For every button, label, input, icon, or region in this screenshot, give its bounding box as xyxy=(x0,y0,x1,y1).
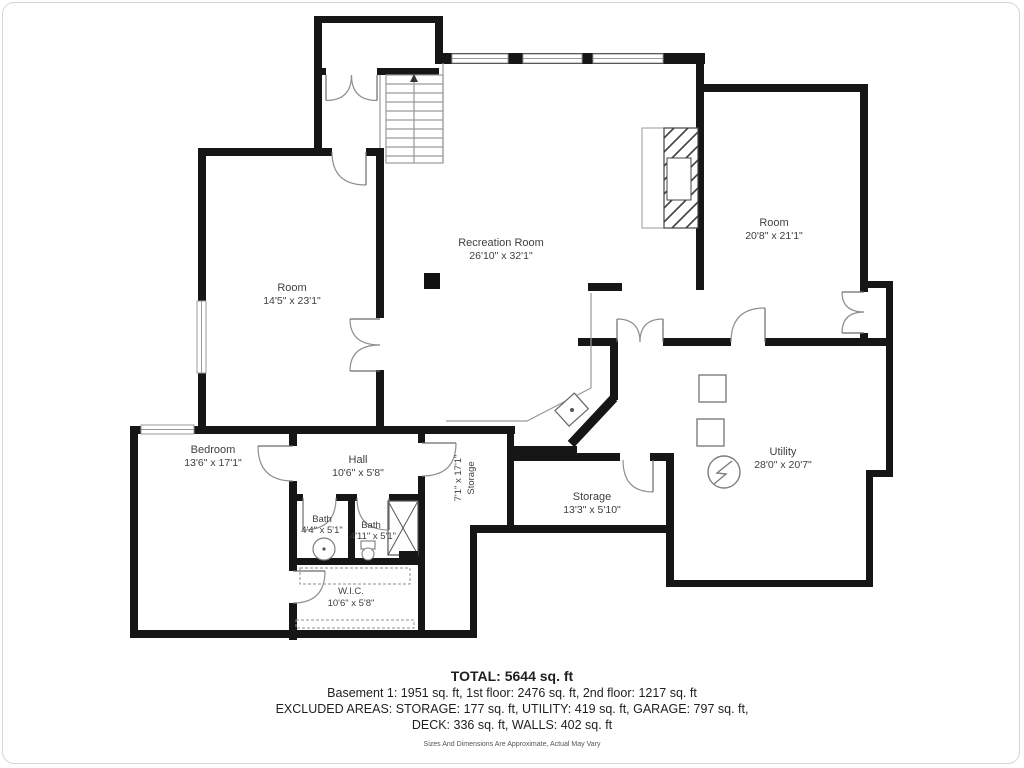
room-labels: Recreation Room 26'10" x 32'1" Room 20'8… xyxy=(184,217,812,609)
wic-dims: 10'6" x 5'8" xyxy=(328,598,375,609)
shower-icon xyxy=(388,501,418,559)
bath-1-name: Bath xyxy=(312,514,332,525)
bedroom-dims: 13'6" x 17'1" xyxy=(184,457,242,469)
storage-dims: 13'3" x 5'10" xyxy=(563,504,621,516)
room-label-bedroom: Bedroom 13'6" x 17'1" xyxy=(184,444,242,469)
storage-name: Storage xyxy=(573,491,612,503)
door-icon xyxy=(350,319,380,371)
disclaimer: Sizes And Dimensions Are Approximate, Ac… xyxy=(0,741,1024,748)
closet-rod-icon xyxy=(296,620,414,628)
door-icon xyxy=(731,308,765,342)
utility-name: Utility xyxy=(770,446,797,458)
door-icon xyxy=(332,152,366,185)
bath-2-name: Bath xyxy=(361,520,381,531)
upper-right-room-name: Room xyxy=(759,217,788,229)
utility-equipment-icon xyxy=(697,419,724,446)
upper-right-room-dims: 20'8" x 21'1" xyxy=(745,230,803,242)
floor-areas: Basement 1: 1951 sq. ft, 1st floor: 2476… xyxy=(0,686,1024,700)
door-icon xyxy=(623,460,653,492)
excluded-areas-line-1: EXCLUDED AREAS: STORAGE: 177 sq. ft, UTI… xyxy=(0,702,1024,716)
door-icon xyxy=(422,443,456,476)
room-label-utility: Utility 28'0" x 20'7" xyxy=(754,446,812,471)
hall-name: Hall xyxy=(349,454,368,466)
upper-left-room-dims: 14'5" x 23'1" xyxy=(263,295,321,307)
door-icon xyxy=(293,571,325,603)
walls xyxy=(130,16,893,640)
utility-dims: 28'0" x 20'7" xyxy=(754,459,812,471)
room-label-bath-1: Bath 4'4" x 5'1" xyxy=(301,514,343,536)
area-summary: TOTAL: 5644 sq. ft Basement 1: 1951 sq. … xyxy=(0,668,1024,748)
room-label-hall: Hall 10'6" x 5'8" xyxy=(332,454,384,479)
door-icon xyxy=(617,319,663,342)
wic-name: W.I.C. xyxy=(338,586,364,597)
storage-corridor-name: Storage xyxy=(466,461,477,494)
utility-equipment-icon xyxy=(699,375,726,402)
room-label-upper-left-room: Room 14'5" x 23'1" xyxy=(263,282,321,307)
upper-left-room-name: Room xyxy=(277,282,306,294)
recreation-room-dims: 26'10" x 32'1" xyxy=(469,250,533,262)
excluded-areas-line-2: DECK: 336 sq. ft, WALLS: 402 sq. ft xyxy=(0,718,1024,732)
fireplace xyxy=(642,128,698,228)
bath-1-dims: 4'4" x 5'1" xyxy=(301,525,343,536)
door-icon xyxy=(326,75,377,101)
room-label-upper-right-room: Room 20'8" x 21'1" xyxy=(745,217,803,242)
room-label-storage: Storage 13'3" x 5'10" xyxy=(563,491,621,516)
floor-plan-page: Recreation Room 26'10" x 32'1" Room 20'8… xyxy=(0,0,1024,768)
kitchenette-counter xyxy=(446,293,591,426)
total-area: TOTAL: 5644 sq. ft xyxy=(0,668,1024,684)
door-icon xyxy=(258,446,293,481)
storage-corridor-dims: 7'1" x 17'1" xyxy=(453,455,464,502)
door-icon xyxy=(842,292,864,333)
room-label-storage-corridor: Storage 7'1" x 17'1" xyxy=(453,455,477,502)
floor-plan-drawing: Recreation Room 26'10" x 32'1" Room 20'8… xyxy=(0,0,1024,768)
hall-dims: 10'6" x 5'8" xyxy=(332,467,384,479)
recreation-room-name: Recreation Room xyxy=(458,237,544,249)
bath-2-dims: 4'11" x 5'1" xyxy=(350,531,396,542)
toilet-icon xyxy=(362,548,374,560)
electrical-panel-icon xyxy=(708,456,740,488)
room-label-wic: W.I.C. 10'6" x 5'8" xyxy=(328,586,375,609)
bedroom-name: Bedroom xyxy=(191,444,236,456)
staircase xyxy=(380,63,443,163)
support-column xyxy=(424,273,440,289)
room-label-recreation-room: Recreation Room 26'10" x 32'1" xyxy=(458,237,544,262)
